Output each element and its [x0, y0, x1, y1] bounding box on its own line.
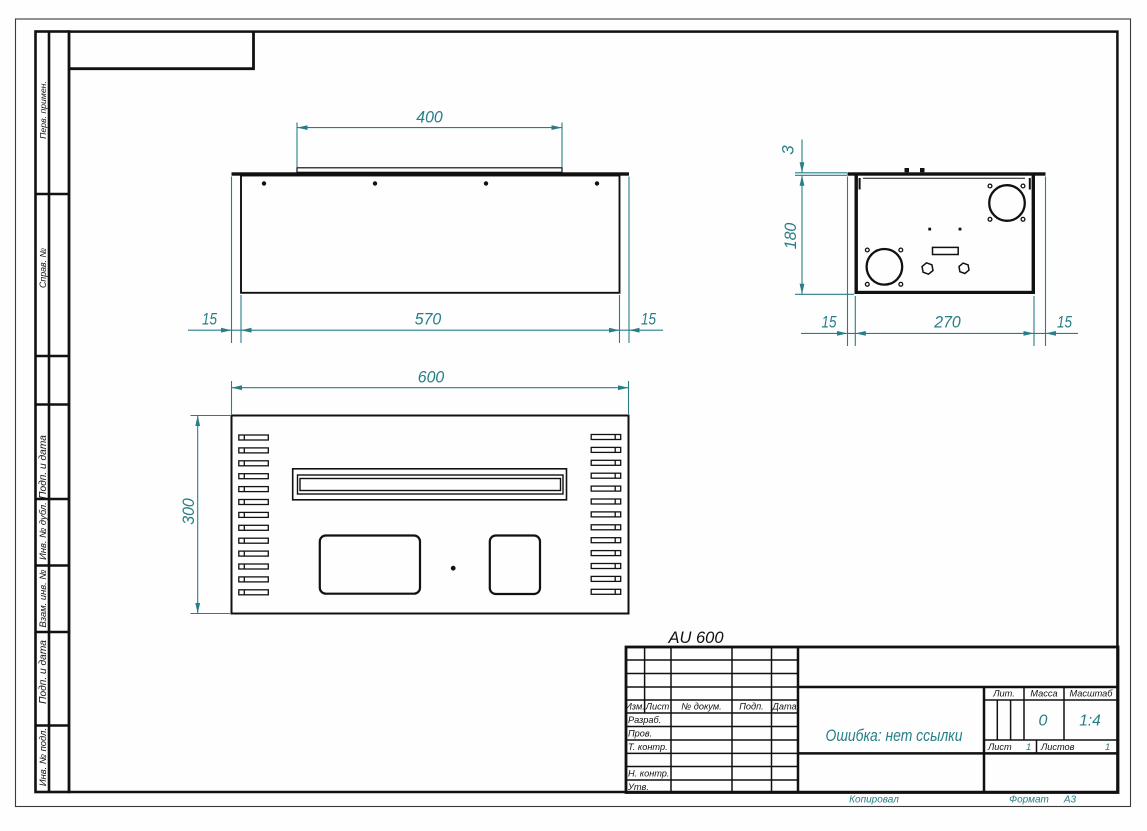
svg-text:А3: А3 [1063, 795, 1077, 806]
svg-text:1: 1 [1105, 742, 1110, 753]
svg-text:Изм.: Изм. [625, 702, 645, 712]
svg-text:Инв. № подл.: Инв. № подл. [37, 728, 48, 786]
svg-text:Дата: Дата [771, 702, 796, 712]
svg-text:Подп.: Подп. [739, 702, 763, 712]
svg-text:0: 0 [1039, 713, 1048, 730]
svg-text:Взам. инв. №: Взам. инв. № [37, 570, 48, 628]
svg-text:Пров.: Пров. [628, 729, 652, 739]
svg-text:Подп. и дата: Подп. и дата [38, 640, 49, 704]
svg-text:15: 15 [202, 310, 217, 329]
svg-text:600: 600 [418, 368, 445, 387]
svg-text:Лист: Лист [645, 702, 670, 712]
svg-text:180: 180 [781, 222, 800, 249]
svg-text:Масштаб: Масштаб [1070, 689, 1114, 699]
svg-text:№ докум.: № докум. [681, 702, 721, 712]
svg-text:300: 300 [179, 498, 198, 525]
svg-text:15: 15 [822, 313, 837, 332]
svg-text:270: 270 [933, 313, 961, 332]
svg-text:Подп. и дата: Подп. и дата [38, 435, 49, 499]
svg-text:15: 15 [641, 310, 656, 329]
svg-text:Лист: Лист [987, 742, 1012, 752]
svg-text:Листов: Листов [1040, 742, 1075, 752]
svg-text:Разраб.: Разраб. [628, 715, 661, 725]
svg-text:Ошибка: нет ссылки: Ошибка: нет ссылки [826, 727, 963, 745]
svg-text:Справ. №: Справ. № [38, 248, 48, 288]
svg-text:3: 3 [779, 145, 798, 155]
svg-text:Т. контр.: Т. контр. [628, 742, 668, 752]
svg-text:Утв.: Утв. [627, 782, 649, 792]
svg-text:15: 15 [1057, 313, 1072, 332]
svg-text:Н. контр.: Н. контр. [628, 769, 669, 779]
svg-text:Копировал: Копировал [849, 795, 899, 806]
svg-text:1:4: 1:4 [1079, 713, 1101, 730]
svg-text:570: 570 [415, 310, 442, 329]
svg-text:400: 400 [416, 107, 443, 126]
svg-text:Масса: Масса [1030, 689, 1057, 699]
svg-text:Инв. № дубл.: Инв. № дубл. [37, 502, 48, 560]
svg-text:Формат: Формат [1009, 795, 1049, 806]
svg-text:Перв. примен.: Перв. примен. [38, 81, 48, 139]
svg-text:1: 1 [1026, 742, 1031, 753]
svg-text:AU 600: AU 600 [667, 629, 724, 647]
svg-text:Лит.: Лит. [992, 689, 1015, 699]
